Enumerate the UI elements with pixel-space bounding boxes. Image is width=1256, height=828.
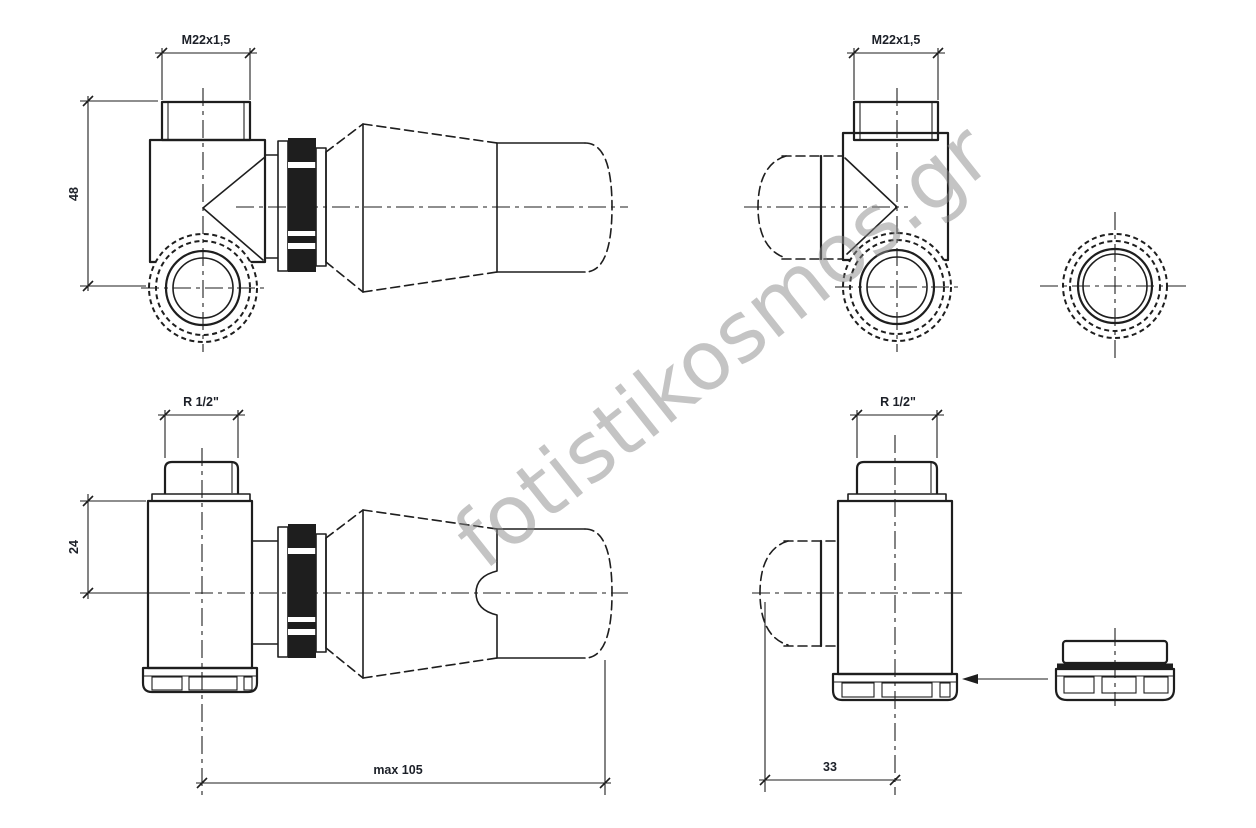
- valve-body: [148, 501, 252, 668]
- width-label: 33: [823, 760, 837, 774]
- dimension-48: 48: [67, 96, 158, 291]
- technical-drawing-page: M22x1,5 48: [0, 0, 1256, 828]
- thread-size-label: R 1/2": [183, 395, 219, 409]
- thread-size-label: R 1/2": [880, 395, 916, 409]
- height-label: 48: [67, 187, 81, 201]
- thread-outline: [857, 462, 937, 494]
- valve-technical-drawing: M22x1,5 48: [0, 0, 1256, 828]
- max-length-label: max 105: [373, 763, 422, 777]
- union-nut-face-view: [1040, 212, 1190, 360]
- thread-outline: [162, 102, 250, 140]
- knurled-ring: [288, 524, 316, 658]
- thread-size-label: M22x1,5: [872, 33, 921, 47]
- dimension-m22-right: M22x1,5: [847, 33, 945, 100]
- assembly-arrow: [962, 674, 1048, 684]
- view-straight-valve-body: R 1/2" 33: [752, 395, 1048, 795]
- thermostatic-head: [326, 124, 612, 292]
- height-label: 24: [67, 540, 81, 554]
- dimension-24: 24: [67, 494, 146, 599]
- bottom-nut: [143, 668, 257, 692]
- dimension-r12-right: R 1/2": [850, 395, 944, 458]
- thread-size-label: M22x1,5: [182, 33, 231, 47]
- dimension-max105: max 105: [196, 660, 611, 795]
- arrowhead-left: [962, 674, 978, 684]
- dimension-m22-left: M22x1,5: [155, 33, 257, 100]
- watermark-text: fotistikosmos.gr: [438, 106, 1009, 587]
- knurled-ring: [288, 138, 316, 272]
- union-nut-side-view: [1056, 628, 1174, 706]
- view-corner-valve-with-head: M22x1,5 48: [67, 33, 628, 352]
- dimension-33: 33: [759, 602, 901, 792]
